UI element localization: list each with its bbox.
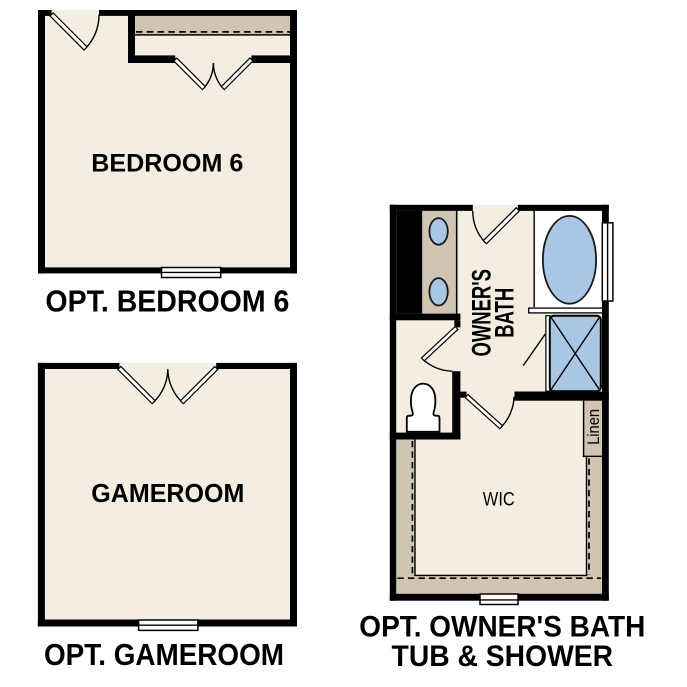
svg-text:OPT. GAMEROOM: OPT. GAMEROOM bbox=[44, 639, 284, 672]
svg-text:TUB & SHOWER: TUB & SHOWER bbox=[392, 640, 614, 673]
svg-text:WIC: WIC bbox=[483, 489, 515, 510]
svg-text:Linen: Linen bbox=[584, 409, 603, 445]
svg-text:OPT. OWNER'S BATH: OPT. OWNER'S BATH bbox=[359, 611, 645, 644]
svg-text:BATH: BATH bbox=[490, 288, 520, 338]
svg-text:BEDROOM 6: BEDROOM 6 bbox=[91, 149, 243, 177]
svg-text:OPT. BEDROOM 6: OPT. BEDROOM 6 bbox=[45, 283, 289, 318]
svg-text:GAMEROOM: GAMEROOM bbox=[91, 480, 244, 508]
